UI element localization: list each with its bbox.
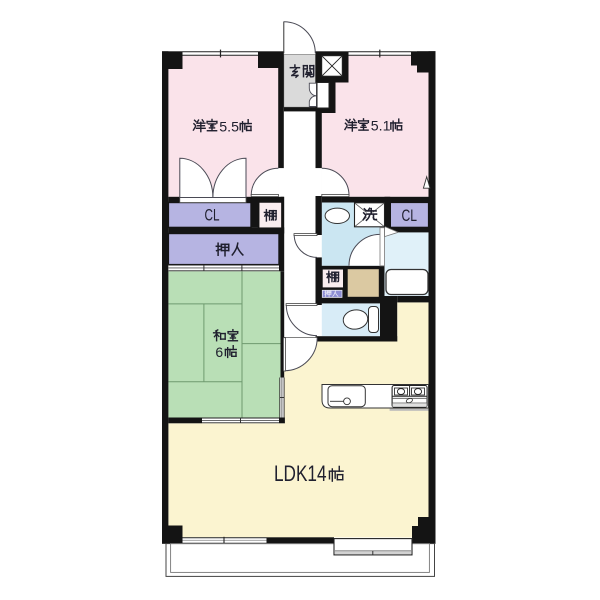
svg-text:CL: CL [205,206,220,225]
svg-text:5.5: 5.5 [219,119,239,135]
svg-text:5.1: 5.1 [371,119,391,135]
svg-text:LDK14: LDK14 [274,461,327,486]
svg-text:6: 6 [215,344,223,360]
svg-text:CL: CL [402,206,418,225]
